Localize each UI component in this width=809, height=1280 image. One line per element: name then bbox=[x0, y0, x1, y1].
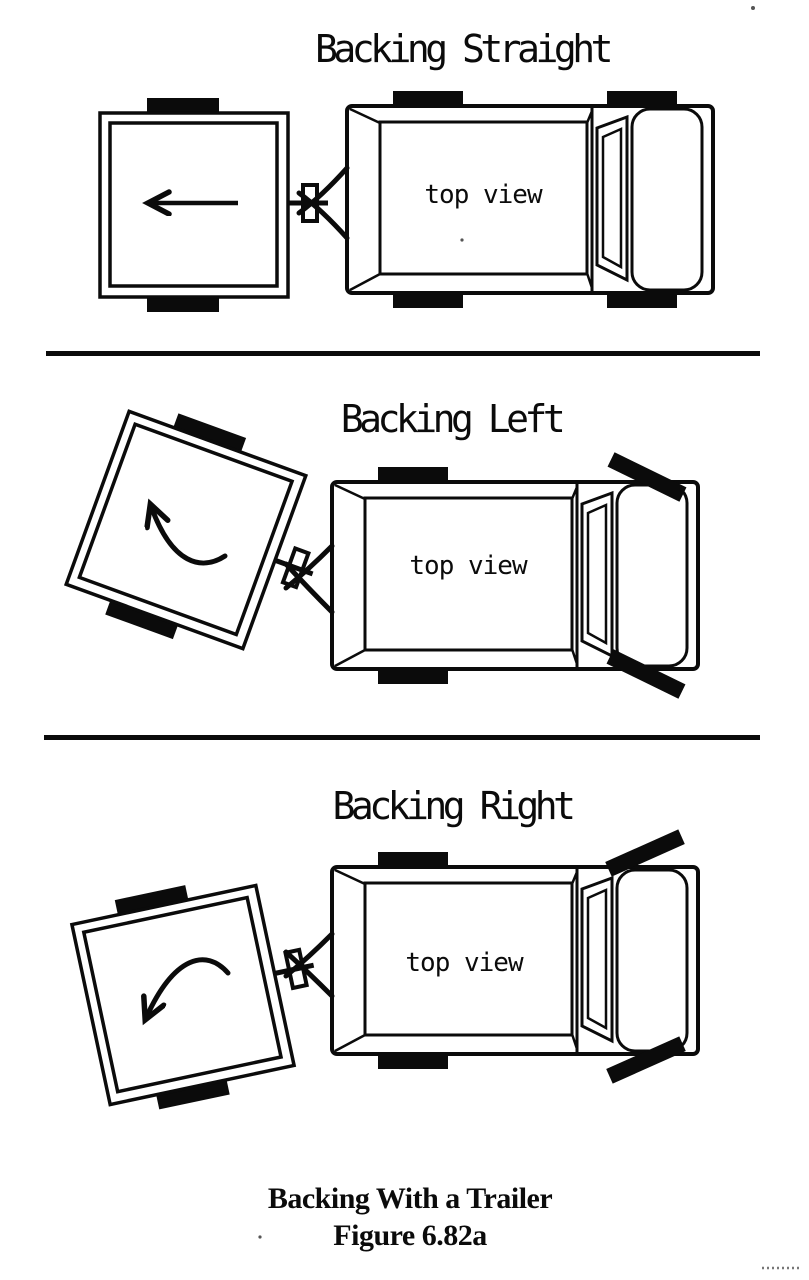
truck-label-top-view-3: top view bbox=[405, 950, 522, 976]
panel-title-backing-right: Backing Right bbox=[333, 787, 572, 825]
trailer-top-view bbox=[61, 397, 348, 676]
figure-caption: Backing With a Trailer Figure 6.82a bbox=[268, 1180, 552, 1254]
trailer-top-view bbox=[69, 862, 337, 1119]
panel-title-backing-left: Backing Left bbox=[341, 400, 562, 438]
truck-label-top-view-1: top view bbox=[424, 182, 541, 208]
panel-backing-left-drawing bbox=[61, 397, 698, 698]
diagram-canvas bbox=[0, 0, 809, 1280]
panel-backing-right-drawing bbox=[69, 829, 698, 1119]
figure-caption-number: Figure 6.82a bbox=[268, 1217, 552, 1254]
panel-divider bbox=[46, 351, 760, 356]
truck-label-top-view-2: top view bbox=[409, 553, 526, 579]
panel-divider bbox=[44, 735, 760, 740]
panel-title-backing-straight: Backing Straight bbox=[315, 30, 609, 68]
panel-backing-straight-drawing bbox=[100, 91, 713, 312]
scanned-page: Backing Straight Backing Left Backing Ri… bbox=[0, 0, 809, 1280]
figure-caption-title: Backing With a Trailer bbox=[268, 1180, 552, 1217]
